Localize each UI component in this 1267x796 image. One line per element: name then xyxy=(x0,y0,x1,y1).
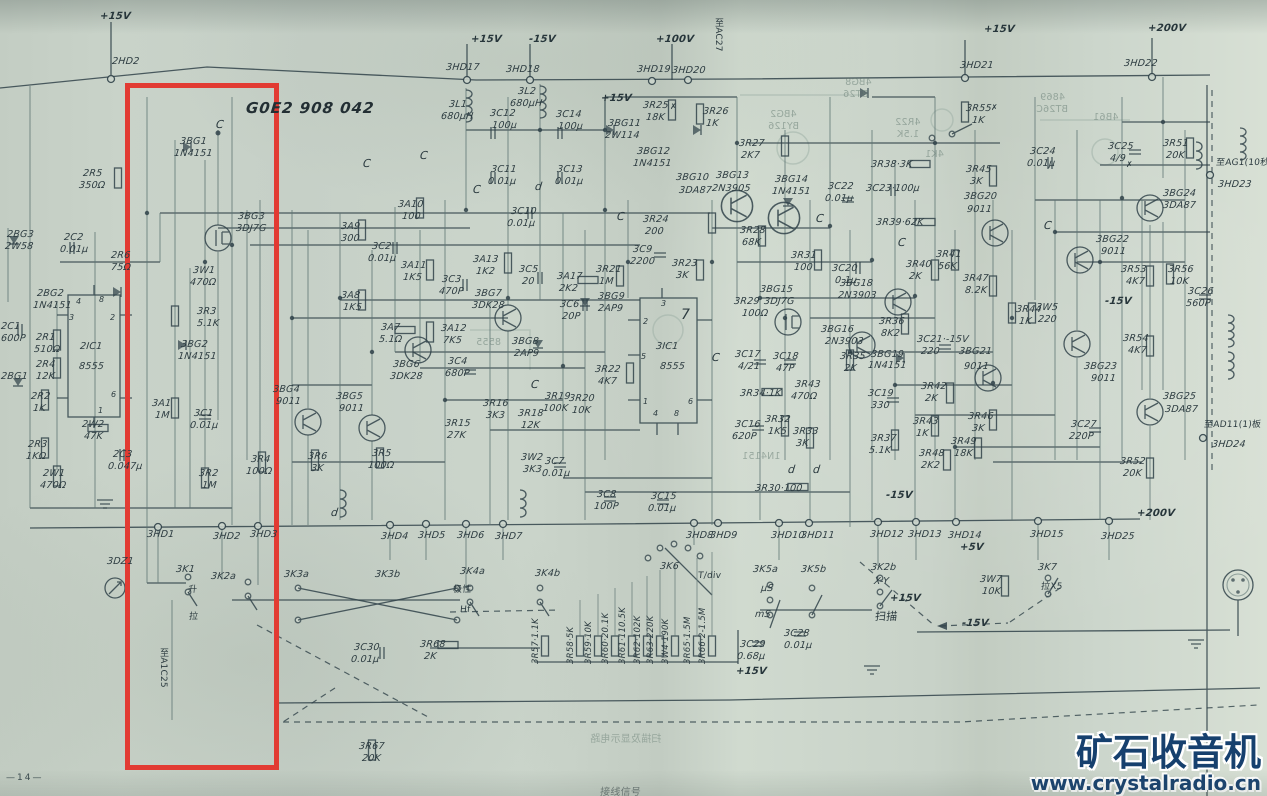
schematic-label: ✗ xyxy=(670,102,677,112)
schematic-label: +15V xyxy=(470,35,502,45)
schematic-label: 3BG15 xyxy=(759,285,793,295)
schematic-label: 3C14 xyxy=(555,110,582,120)
schematic-label: 75Ω xyxy=(110,263,131,273)
schematic-label: 2200 xyxy=(629,257,655,267)
schematic-label: 2W1 xyxy=(42,469,65,479)
schematic-label: 3W4·190K xyxy=(661,619,671,664)
schematic-label: 20P xyxy=(561,312,580,322)
schematic-label: 3R24 xyxy=(642,215,669,225)
schematic-label: 3K3 xyxy=(485,411,505,421)
schematic-label: 1K xyxy=(915,429,929,439)
schematic-label: C xyxy=(419,151,428,161)
schematic-label: 3K5b xyxy=(800,565,826,575)
schematic-label: 0.01μ xyxy=(783,641,812,651)
schematic-label: 18K xyxy=(953,449,973,459)
schematic-label: 3DK28 xyxy=(389,372,423,382)
schematic-label: 4 xyxy=(76,297,81,307)
schematic-label: 5.1Ω xyxy=(378,335,402,345)
schematic-label: 3K2b xyxy=(870,563,896,573)
schematic-label: 1K2 xyxy=(475,267,495,277)
schematic-label: 8K2 xyxy=(880,329,900,339)
schematic-label: 47P xyxy=(775,364,794,374)
schematic-label: 3BG2 xyxy=(180,340,208,350)
schematic-label: 8 xyxy=(674,409,679,419)
schematic-label: 3C18 xyxy=(772,352,799,362)
schematic-label: 3HD13 xyxy=(907,530,942,540)
schematic-label: 1K5 xyxy=(402,273,422,283)
schematic-label: 2W2 xyxy=(81,420,104,430)
schematic-label: 3K5a xyxy=(752,565,778,575)
schematic-label: 2 xyxy=(110,313,115,323)
schematic-label: 3A12 xyxy=(440,324,466,334)
schematic-label: 3DA87 xyxy=(1162,201,1196,211)
schematic-label: 560P xyxy=(1185,299,1211,309)
schematic-label: 100Ω xyxy=(245,467,272,477)
schematic-label: 3R16 xyxy=(482,399,509,409)
schematic-label: 1K5 xyxy=(767,427,787,437)
schematic-label: 3K6 xyxy=(659,562,679,572)
schematic-label: 3BG14 xyxy=(774,175,808,185)
schematic-label: 2C3 xyxy=(112,450,132,460)
schematic-label: 3K xyxy=(969,177,983,187)
schematic-label: 0.01μ xyxy=(59,245,88,255)
schematic-label: 7K5 xyxy=(442,336,462,346)
schematic-label: 2K2 xyxy=(558,284,578,294)
schematic-label: 20 xyxy=(521,277,535,287)
schematic-label: 3 xyxy=(661,299,666,309)
schematic-label: 10K xyxy=(981,587,1001,597)
schematic-label: 3R43 xyxy=(912,417,939,427)
schematic-label: 2N3903 xyxy=(837,291,877,301)
schematic-label: 3R2 xyxy=(198,469,218,479)
schematic-label: 3IC1 xyxy=(655,342,678,352)
schematic-label: 3BG24 xyxy=(1162,189,1196,199)
schematic-label: C xyxy=(215,120,224,130)
schematic-label: +200V xyxy=(1147,24,1186,34)
schematic-label: 1N4151 xyxy=(771,187,811,197)
schematic-label: 8.2K xyxy=(964,286,987,296)
schematic-label: 1 xyxy=(643,397,648,407)
schematic-label: 510Ω xyxy=(33,345,60,355)
schematic-label: 3R25 xyxy=(642,101,669,111)
schematic-label: 3C21·-15V xyxy=(916,335,969,345)
schematic-label: 3BG7 xyxy=(474,289,502,299)
schematic-label: 680P xyxy=(444,369,470,379)
schematic-label: 220 xyxy=(1037,315,1057,325)
schematic-label: +15V xyxy=(983,25,1015,35)
schematic-label: 3R22 xyxy=(594,365,621,375)
schematic-label: 2 xyxy=(643,317,648,327)
schematic-label: 3DZ1 xyxy=(106,557,134,567)
schematic-label: 3HD9 xyxy=(709,531,737,541)
schematic-label: 3HD25 xyxy=(1100,532,1135,542)
schematic-label: 2W58 xyxy=(4,242,33,252)
schematic-label: 3R66·2-1.5M xyxy=(698,608,708,664)
schematic-label: 3R62·102K xyxy=(633,616,643,664)
schematic-label: 3BG19 xyxy=(870,350,904,360)
schematic-label: 3R37 xyxy=(870,434,897,444)
schematic-label: 680μH xyxy=(440,112,473,122)
schematic-label: 2C2 xyxy=(63,233,83,243)
schematic-label: 3C12 xyxy=(489,109,516,119)
schematic-label: 3R51 xyxy=(1162,139,1189,149)
schematic-label: 3K2a xyxy=(210,572,236,582)
schematic-label: 极性 xyxy=(452,585,471,595)
schematic-label: 8 xyxy=(99,295,104,305)
schematic-label: 3R33 xyxy=(792,427,819,437)
schematic-label: 3R4 xyxy=(250,455,270,465)
schematic-label: 3BG20 xyxy=(963,192,997,202)
schematic-label: 350Ω xyxy=(78,181,105,191)
schematic-label: 0.01μ xyxy=(554,177,583,187)
schematic-label: 3R27 xyxy=(738,139,765,149)
schematic-label: 100 xyxy=(401,212,421,222)
schematic-label: 升 xyxy=(187,585,197,595)
schematic-label: +100V xyxy=(655,35,694,45)
schematic-label: d xyxy=(812,465,820,475)
schematic-label: 220 xyxy=(920,347,940,357)
schematic-label: 3C17 xyxy=(734,350,761,360)
schematic-label: 3C26 xyxy=(1187,287,1214,297)
schematic-label: 3C16 xyxy=(734,420,761,430)
schematic-label: 3BG18 xyxy=(839,279,873,289)
schematic-label: 100 xyxy=(793,263,813,273)
schematic-label: 3R41 xyxy=(935,250,962,260)
schematic-label: 3K4b xyxy=(534,569,560,579)
schematic-label: 20K xyxy=(361,754,381,764)
schematic-label: 3HD6 xyxy=(456,531,484,541)
schematic-label: 3C22 xyxy=(827,182,854,192)
watermark-title: 矿石收音机 xyxy=(1031,734,1261,773)
schematic-label: 3R68 xyxy=(419,640,446,650)
schematic-label: 3A1 xyxy=(151,399,171,409)
schematic-label: +15V xyxy=(99,12,131,22)
schematic-label: 620P xyxy=(731,432,757,442)
schematic-label: 3C9 xyxy=(632,245,652,255)
schematic-label: 3HD3 xyxy=(249,530,277,540)
schematic-label: 2K2 xyxy=(920,461,940,471)
schematic-label: 3HD5 xyxy=(417,531,445,541)
schematic-label: 3HD20 xyxy=(671,66,706,76)
schematic-label: 470P xyxy=(438,287,464,297)
schematic-label: 0.01μ xyxy=(189,421,218,431)
schematic-label: 2AP9 xyxy=(513,349,539,359)
schematic-label: 1N4151 xyxy=(742,452,781,462)
schematic-label: 8555 xyxy=(78,362,104,372)
schematic-label: 扫描及显示电路 xyxy=(590,735,661,745)
schematic-label: 3R43 xyxy=(794,380,821,390)
schematic-label: 3C8 xyxy=(596,490,616,500)
schematic-label: 3K3b xyxy=(374,570,400,580)
schematic-label: 4K7 xyxy=(1127,346,1147,356)
schematic-label: 3R3 xyxy=(196,307,216,317)
schematic-label: 3HD1 xyxy=(146,530,174,540)
schematic-label: 3HD19 xyxy=(636,65,671,75)
schematic-label: 1K xyxy=(971,116,985,126)
schematic-label: 3R54 xyxy=(1122,334,1149,344)
schematic-label: 3R26 xyxy=(702,107,729,117)
schematic-label: 1M xyxy=(598,277,614,287)
schematic-label: 2K xyxy=(843,364,857,374)
schematic-label: 3C28 xyxy=(783,629,810,639)
schematic-label: 3R63·220K xyxy=(646,616,656,664)
schematic-label: 3C23·100μ xyxy=(865,184,920,194)
schematic-label: 3BG13 xyxy=(715,171,749,181)
schematic-label: 3R60·20.1K xyxy=(601,613,611,664)
schematic-label: 3R39·62K xyxy=(875,218,924,228)
schematic-label: 100K xyxy=(542,404,568,414)
schematic-label: 3DA87 xyxy=(1164,405,1198,415)
schematic-label: 2BG2 xyxy=(36,289,64,299)
schematic-label: 3C30 xyxy=(353,643,380,653)
schematic-label: 100Ω xyxy=(741,309,768,319)
schematic-label: 3BG25 xyxy=(1162,392,1196,402)
schematic-label: 4/21 xyxy=(737,362,760,372)
schematic-label: +200V xyxy=(1136,509,1175,519)
schematic-label: BT26C xyxy=(1036,105,1068,115)
schematic-label: 3R42 xyxy=(920,382,947,392)
schematic-label: 4BG8 xyxy=(845,78,872,88)
schematic-label: 2K7 xyxy=(740,151,760,161)
schematic-label: 接线信号 xyxy=(599,788,641,796)
schematic-scan: +15V2HD2G0E2 908 042+15V3HD17-15V3HD18+1… xyxy=(0,0,1267,796)
schematic-label: 3R55 xyxy=(965,104,992,114)
schematic-label: 2K xyxy=(908,272,922,282)
schematic-label: ✗ xyxy=(991,103,998,113)
schematic-label: 9011 xyxy=(966,205,992,215)
schematic-label: 3BG12 xyxy=(636,147,670,157)
schematic-label: d xyxy=(534,182,542,192)
schematic-label: 1KΩ xyxy=(25,452,46,462)
schematic-label: 3BG21 xyxy=(958,347,992,357)
schematic-label: 3K4a xyxy=(459,567,485,577)
schematic-label: 3BG4 xyxy=(272,385,300,395)
schematic-label: 1 xyxy=(98,406,103,416)
schematic-label: -15V xyxy=(1104,297,1132,307)
schematic-label: 2BG1 xyxy=(0,372,28,382)
schematic-label: 2R1 xyxy=(35,333,55,343)
schematic-label: 2W114 xyxy=(604,131,640,141)
schematic-label: C xyxy=(897,238,906,248)
schematic-label: 3HD7 xyxy=(494,532,522,542)
schematic-label: 3R31 xyxy=(790,251,817,261)
schematic-label: 至AC27 xyxy=(713,18,723,52)
schematic-label: BY126 xyxy=(768,122,799,132)
schematic-label: 3DJ7G xyxy=(235,224,267,234)
schematic-label: 3DK28 xyxy=(471,301,505,311)
schematic-label: 3K xyxy=(675,271,689,281)
schematic-label: 3BG1 xyxy=(179,137,207,147)
schematic-label: 3C10 xyxy=(510,207,537,217)
schematic-label: 12K xyxy=(35,372,55,382)
schematic-label: 3C11 xyxy=(490,165,517,175)
schematic-label: 0.01μ xyxy=(350,655,379,665)
schematic-label: 0.047μ xyxy=(107,462,143,472)
schematic-label: 9011 xyxy=(275,397,301,407)
schematic-label: +5V xyxy=(959,543,984,553)
schematic-label: 3BG16 xyxy=(820,325,854,335)
schematic-label: 5.1K xyxy=(196,319,219,329)
schematic-label: 0.01μ xyxy=(506,219,535,229)
schematic-label: 3K3a xyxy=(283,570,309,580)
schematic-label: 3HD11 xyxy=(800,531,835,541)
schematic-label: 3R34·1K xyxy=(739,389,781,399)
schematic-label: 3HD12 xyxy=(869,530,904,540)
schematic-label: 3K7 xyxy=(1037,563,1057,573)
schematic-label: 3C27 xyxy=(1070,420,1097,430)
schematic-label: 6 xyxy=(688,397,693,407)
schematic-label: 3HD17 xyxy=(445,63,480,73)
schematic-label: 3BG23 xyxy=(1083,362,1117,372)
schematic-label: G0E2 908 042 xyxy=(245,103,375,113)
schematic-label: 3 xyxy=(69,313,74,323)
schematic-label: 3A10 xyxy=(397,200,423,210)
schematic-label: 100μ xyxy=(491,121,517,131)
schematic-label: 3HD24 xyxy=(1211,440,1246,450)
schematic-label: 3A7 xyxy=(380,323,400,333)
schematic-label: Hf xyxy=(459,605,470,615)
schematic-label: 3R5 xyxy=(371,449,391,459)
schematic-label: 4R22 xyxy=(895,118,921,128)
schematic-label: 3R49 xyxy=(950,437,977,447)
schematic-label: 56K xyxy=(937,262,957,272)
schematic-label: 拉X5 xyxy=(1040,582,1063,592)
schematic-label: 0.01μ xyxy=(541,469,570,479)
schematic-label: C xyxy=(711,353,720,363)
schematic-label: 2R4 xyxy=(35,360,55,370)
schematic-label: +15V xyxy=(889,594,921,604)
schematic-label: 18K xyxy=(645,113,665,123)
schematic-label: 至AG1(10秒 xyxy=(1215,158,1267,168)
schematic-label: 3R35 xyxy=(839,352,866,362)
schematic-label: 1N4151 xyxy=(177,352,217,362)
schematic-label: 2AP9 xyxy=(597,304,623,314)
schematic-label: d xyxy=(787,465,795,475)
schematic-label: 3R36 xyxy=(878,317,905,327)
watermark: 矿石收音机 www.crystalradio.cn xyxy=(1031,734,1261,794)
schematic-label: 1K xyxy=(32,404,46,414)
schematic-label: 3K xyxy=(971,424,985,434)
schematic-label: 3L2 xyxy=(517,87,536,97)
schematic-label: 3R6 xyxy=(307,452,327,462)
schematic-label: 8555 xyxy=(659,362,685,372)
schematic-label: 3W2 xyxy=(520,453,543,463)
schematic-label: 0.68μ xyxy=(736,652,765,662)
schematic-label: 4K7 xyxy=(1125,277,1145,287)
schematic-label: 3R30·100 xyxy=(754,484,803,494)
schematic-label: 3BG11 xyxy=(607,119,641,129)
schematic-label: 拉 xyxy=(188,612,198,622)
schematic-label: 100P xyxy=(593,502,619,512)
schematic-label: 5.1K xyxy=(868,446,891,456)
schematic-label: C xyxy=(815,214,824,224)
schematic-label: 3R45 xyxy=(965,165,992,175)
schematic-label: 3R59·10K xyxy=(584,621,594,664)
schematic-label: 3L1 xyxy=(448,100,467,110)
schematic-label: 3C3 xyxy=(441,275,461,285)
schematic-label: 3W7 xyxy=(979,575,1002,585)
schematic-label: 3C13 xyxy=(556,165,583,175)
schematic-label: 680μH xyxy=(509,99,542,109)
labels-layer: +15V2HD2G0E2 908 042+15V3HD17-15V3HD18+1… xyxy=(0,0,1267,796)
schematic-label: 3C24 xyxy=(1029,147,1056,157)
schematic-label: 3R38·3K xyxy=(870,160,912,170)
schematic-label: 3A11 xyxy=(400,261,426,271)
schematic-label: 1M xyxy=(154,411,170,421)
schematic-label: 2N3903 xyxy=(824,337,864,347)
schematic-label: 4/9 xyxy=(1109,154,1126,164)
schematic-label: 3R67 xyxy=(358,742,385,752)
schematic-label: ✗ xyxy=(1126,160,1133,170)
schematic-label: 3R47 xyxy=(962,274,989,284)
schematic-label: 3C20 xyxy=(831,264,858,274)
schematic-label: 2R6 xyxy=(110,251,130,261)
schematic-label: 1N4151 xyxy=(32,301,72,311)
schematic-label: 2K xyxy=(423,652,437,662)
page-number: —14— xyxy=(6,773,43,783)
schematic-label: 3C25 xyxy=(1107,142,1134,152)
schematic-label: 9011 xyxy=(338,404,364,414)
schematic-label: X-Y xyxy=(873,577,889,587)
schematic-label: 2R3 xyxy=(27,440,47,450)
schematic-label: 47K xyxy=(83,432,103,442)
schematic-label: 3R61·110.5K xyxy=(618,607,628,664)
schematic-label: d xyxy=(330,508,338,518)
schematic-label: 3HD4 xyxy=(380,532,408,542)
schematic-label: 3R46 xyxy=(967,412,994,422)
schematic-label: 3R65·1.5M xyxy=(683,617,693,664)
schematic-label: 9011 xyxy=(963,362,989,372)
schematic-label: 1K5 xyxy=(342,303,362,313)
schematic-label: 3A8 xyxy=(340,291,360,301)
schematic-label: 9011 xyxy=(1090,374,1116,384)
schematic-label: 0.01μ xyxy=(647,504,676,514)
schematic-label: 3R52 xyxy=(1119,457,1146,467)
schematic-label: 3C4 xyxy=(447,357,467,367)
schematic-label: 3BG5 xyxy=(335,392,363,402)
schematic-label: 10K xyxy=(1169,277,1189,287)
schematic-label: BT26 xyxy=(843,90,868,100)
schematic-label: 3R23 xyxy=(671,259,698,269)
schematic-label: 3BG9 xyxy=(597,292,625,302)
schematic-label: 2IC1 xyxy=(79,342,102,352)
schematic-label: 3R20 xyxy=(568,394,595,404)
schematic-label: 3C15 xyxy=(650,492,677,502)
schematic-label: 2HD2 xyxy=(111,57,139,67)
schematic-label: 220P xyxy=(1068,432,1094,442)
schematic-label: 1.5K xyxy=(897,130,919,140)
schematic-label: C xyxy=(472,185,481,195)
schematic-label: 3BG8 xyxy=(511,337,539,347)
schematic-label: 1K xyxy=(1018,317,1032,327)
schematic-label: 1M xyxy=(201,481,217,491)
schematic-label: 3R58·5K xyxy=(566,627,576,664)
schematic-label: 6 xyxy=(111,390,116,400)
schematic-label: 2BG3 xyxy=(6,230,34,240)
schematic-label: 3A9 xyxy=(340,222,360,232)
schematic-label: 3C5 xyxy=(518,265,538,275)
schematic-label: 2R2 xyxy=(30,392,50,402)
schematic-label: +15V xyxy=(600,94,632,104)
schematic-label: 3A13 xyxy=(472,255,498,265)
schematic-label: 3C6 xyxy=(559,300,579,310)
schematic-label: 0.01μ xyxy=(367,254,396,264)
schematic-label: 3R19 xyxy=(544,392,571,402)
schematic-label: 4BG2 xyxy=(770,110,797,120)
schematic-label: 3R18 xyxy=(517,409,544,419)
schematic-label: 3BG10 xyxy=(675,173,709,183)
schematic-label: 3A17 xyxy=(556,272,582,282)
